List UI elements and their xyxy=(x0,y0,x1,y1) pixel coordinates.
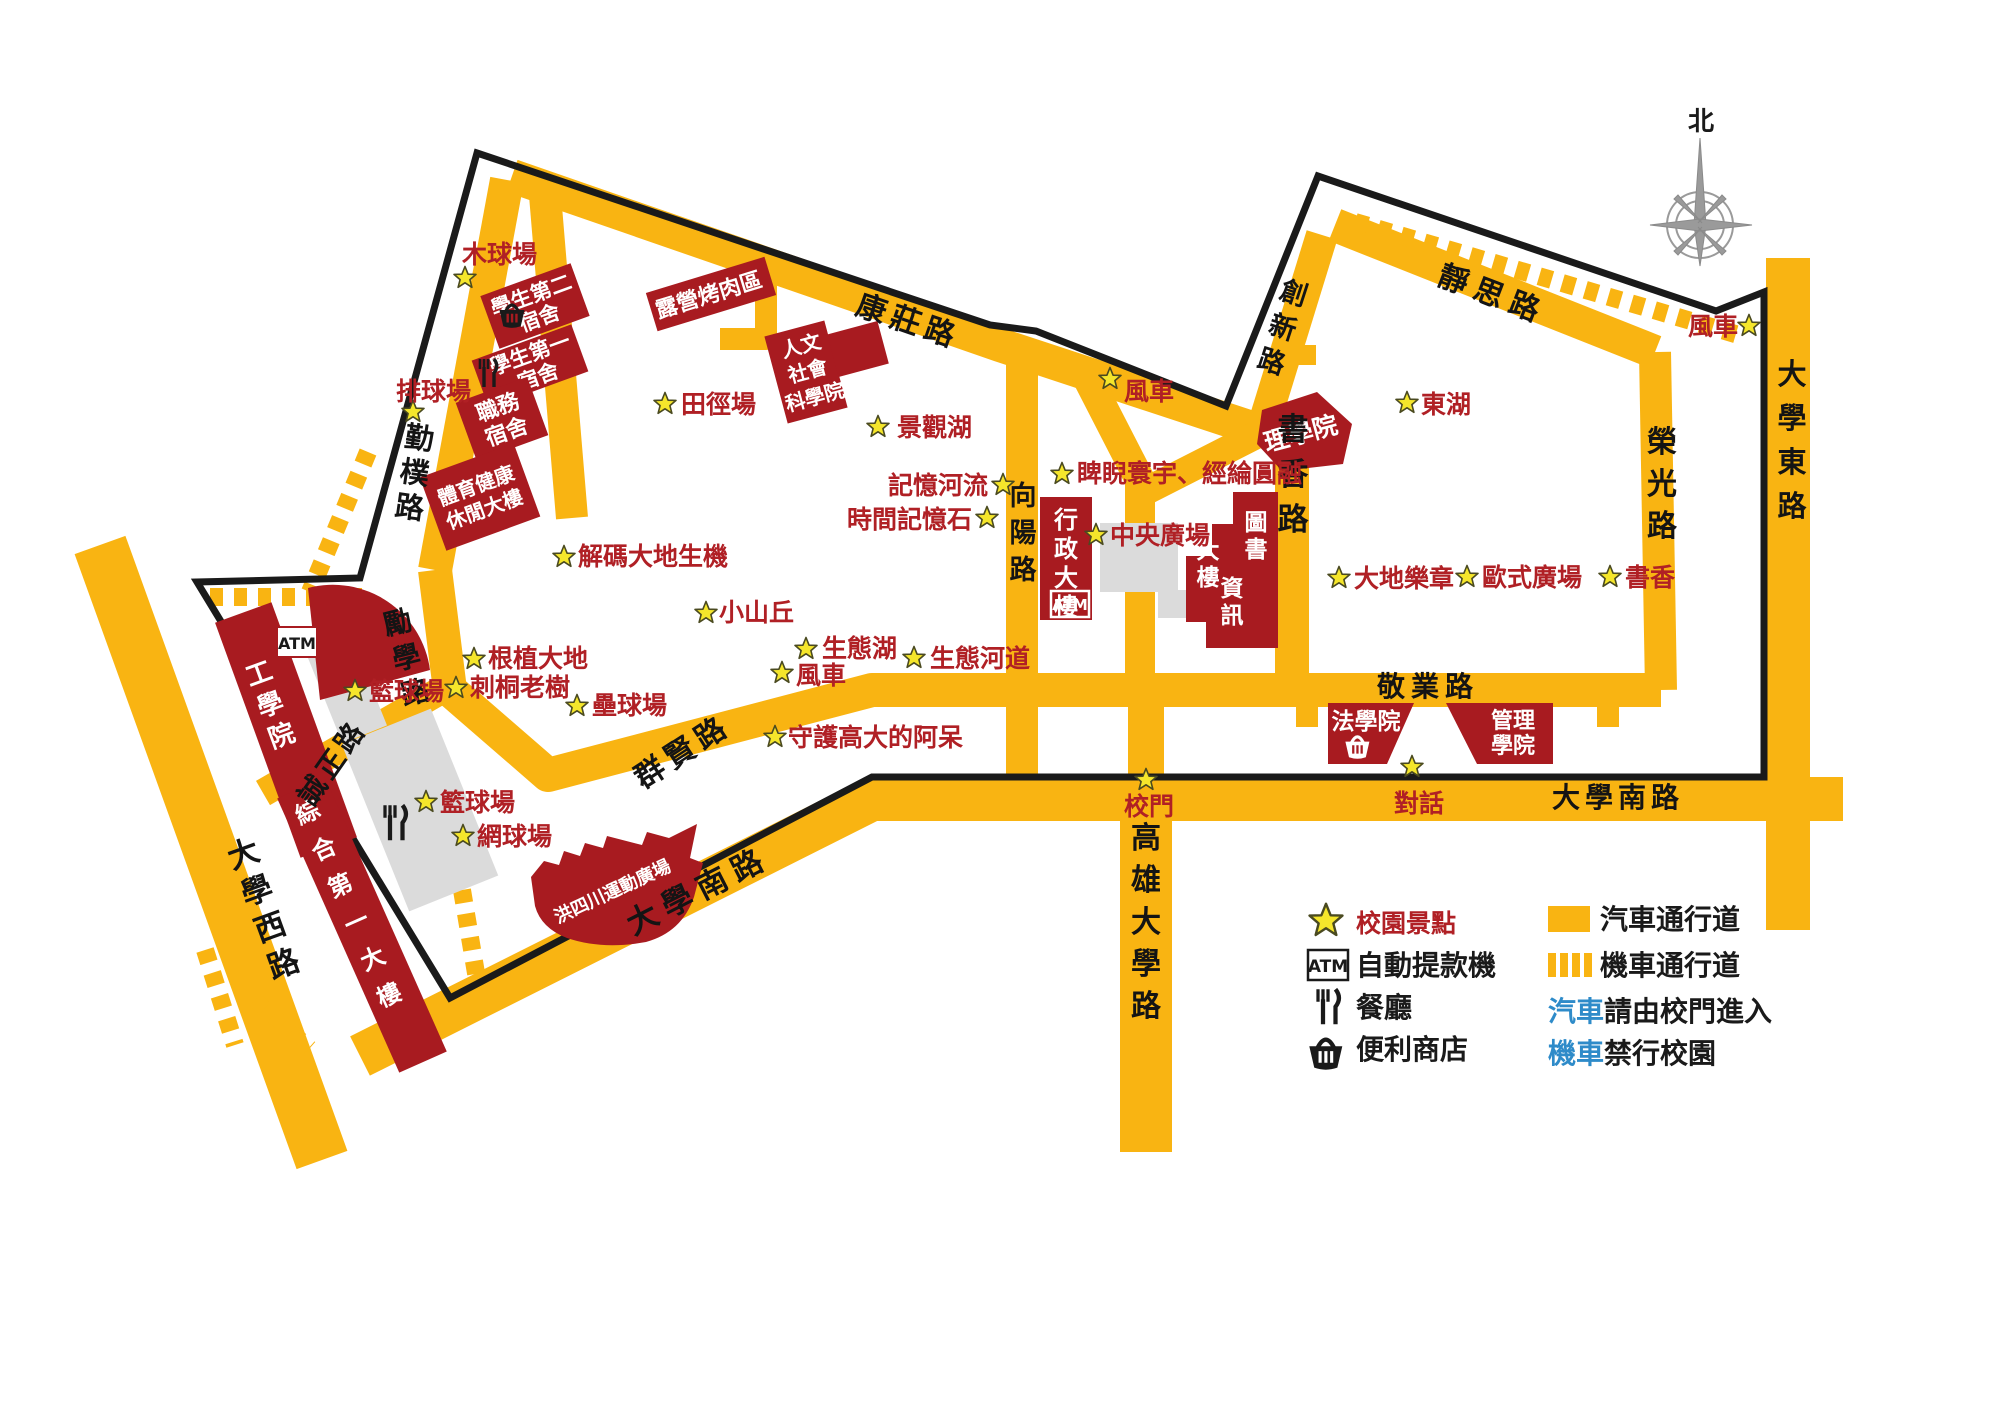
spot-label-shouhu: 守護高大的阿呆 xyxy=(788,723,963,752)
legend-car-road-label: 汽車通行道 xyxy=(1600,903,1740,936)
road-label-jingye: 敬業路 xyxy=(1376,670,1479,703)
spot-star-fengche3 xyxy=(771,662,793,683)
legend-moto-note: 機車禁行校園 xyxy=(1548,1037,1716,1070)
spot-label-paiqiu: 排球場 xyxy=(396,377,471,406)
spot-label-jingguanhu: 景觀湖 xyxy=(897,413,972,442)
legend-store-icon xyxy=(1309,1040,1342,1070)
spot-label-muqiu: 木球場 xyxy=(461,240,537,269)
spot-label-pini: 睥睨寰宇、經綸圓融 xyxy=(1077,459,1302,488)
legend-car-note: 汽車請由校門進入 xyxy=(1548,995,1772,1028)
spot-label-fengche3: 風車 xyxy=(796,661,846,690)
spot-star-donghu xyxy=(1396,392,1418,413)
atm-text-admin: ATM xyxy=(1052,596,1088,614)
spot-label-xiaomen: 校門 xyxy=(1124,792,1174,821)
legend-moto-road-label: 機車通行道 xyxy=(1600,949,1740,982)
spot-star-shijian xyxy=(976,507,998,528)
spot-star-tianjing xyxy=(654,393,676,414)
spot-star-dadi xyxy=(1328,567,1350,588)
building-library-label-c1: 圖書 xyxy=(1245,510,1268,563)
spot-label-shengtaihedao: 生態河道 xyxy=(930,644,1030,673)
spot-star-pini xyxy=(1051,463,1073,484)
spot-star-jingguanhu xyxy=(867,416,889,437)
spot-star-fengche2 xyxy=(1738,315,1760,336)
spot-star-jiema xyxy=(553,546,575,567)
legend-atm-abbr: ATM xyxy=(1308,957,1348,977)
building-law-label: 法學院 xyxy=(1332,708,1401,735)
spot-label-leiqiu: 壘球場 xyxy=(592,691,667,720)
spot-star-shengtaihu xyxy=(795,638,817,659)
spot-label-wangqiu: 網球場 xyxy=(477,822,552,851)
legend: 校園景點 ATM 自動提款機 餐廳 便利商店 汽車通行道 機車通行道 汽車請由校… xyxy=(1308,903,1772,1070)
spot-star-genzhi xyxy=(463,648,485,669)
building-management-label: 管理 xyxy=(1491,708,1535,734)
spot-label-tianjing: 田徑場 xyxy=(681,390,756,419)
spot-star-duihua xyxy=(1401,756,1423,777)
road-label-gaoxiong: 高雄大學路 xyxy=(1131,821,1162,1024)
spot-star-shengtaihedao xyxy=(903,647,925,668)
spot-label-citong: 刺桐老樹 xyxy=(470,673,570,702)
legend-restaurant-label: 餐廳 xyxy=(1356,991,1412,1024)
spot-label-shuxiang: 書香 xyxy=(1625,563,1675,592)
spot-label-zhongyang: 中央廣場 xyxy=(1110,521,1210,550)
spot-label-genzhi: 根植大地 xyxy=(488,644,588,673)
legend-star-icon xyxy=(1310,904,1343,935)
spot-label-oushi: 歐式廣場 xyxy=(1482,563,1582,592)
building-management-label2: 學院 xyxy=(1491,733,1535,759)
spot-label-fengche2: 風車 xyxy=(1688,312,1738,341)
legend-moto-road-swatch xyxy=(1548,953,1592,977)
spot-label-shijian: 時間記憶石 xyxy=(847,505,972,534)
spot-star-shuxiang xyxy=(1599,566,1621,587)
compass: 北 xyxy=(1650,107,1752,266)
campus-map: 學生第二 宿舍 學生第一 宿舍 職務 宿舍 體育健康 休閒大樓 露營烤肉區 人文… xyxy=(0,0,2000,1413)
spot-label-duihua: 對話 xyxy=(1394,789,1444,818)
legend-restaurant-icon xyxy=(1318,989,1339,1024)
spot-label-jiyiheliu: 記憶河流 xyxy=(888,471,988,500)
moto-lane-sw-2 xyxy=(462,890,478,985)
compass-needle-ns xyxy=(1694,138,1706,266)
legend-store-label: 便利商店 xyxy=(1356,1033,1468,1066)
spot-star-oushi xyxy=(1456,566,1478,587)
spot-label-donghu: 東湖 xyxy=(1421,390,1471,419)
legend-atm-label: 自動提款機 xyxy=(1356,949,1496,982)
spot-label-fengche1: 風車 xyxy=(1124,377,1174,406)
atm-text-engineering: ATM xyxy=(278,634,316,653)
spot-label-shengtaihu: 生態湖 xyxy=(822,634,897,663)
road-label-rongguang: 榮光路 xyxy=(1647,425,1678,544)
central-plaza-tab xyxy=(1158,590,1188,618)
legend-spot-label: 校園景點 xyxy=(1356,909,1456,938)
spot-label-dadi: 大地樂章 xyxy=(1354,564,1454,593)
compass-north-label: 北 xyxy=(1688,107,1714,137)
road-label-xiangyang: 向陽路 xyxy=(1010,480,1038,586)
spot-label-lanqiu2: 籃球場 xyxy=(440,788,515,817)
legend-car-road-swatch xyxy=(1548,906,1590,932)
road-label-daxue-south-east: 大學南路 xyxy=(1552,781,1684,814)
spot-label-jiema: 解碼大地生機 xyxy=(578,542,728,571)
spot-label-xiaoshanqiu: 小山丘 xyxy=(719,598,794,627)
spot-star-xiaoshanqiu xyxy=(695,602,717,623)
spot-label-lanqiu1: 籃球場 xyxy=(369,677,444,706)
